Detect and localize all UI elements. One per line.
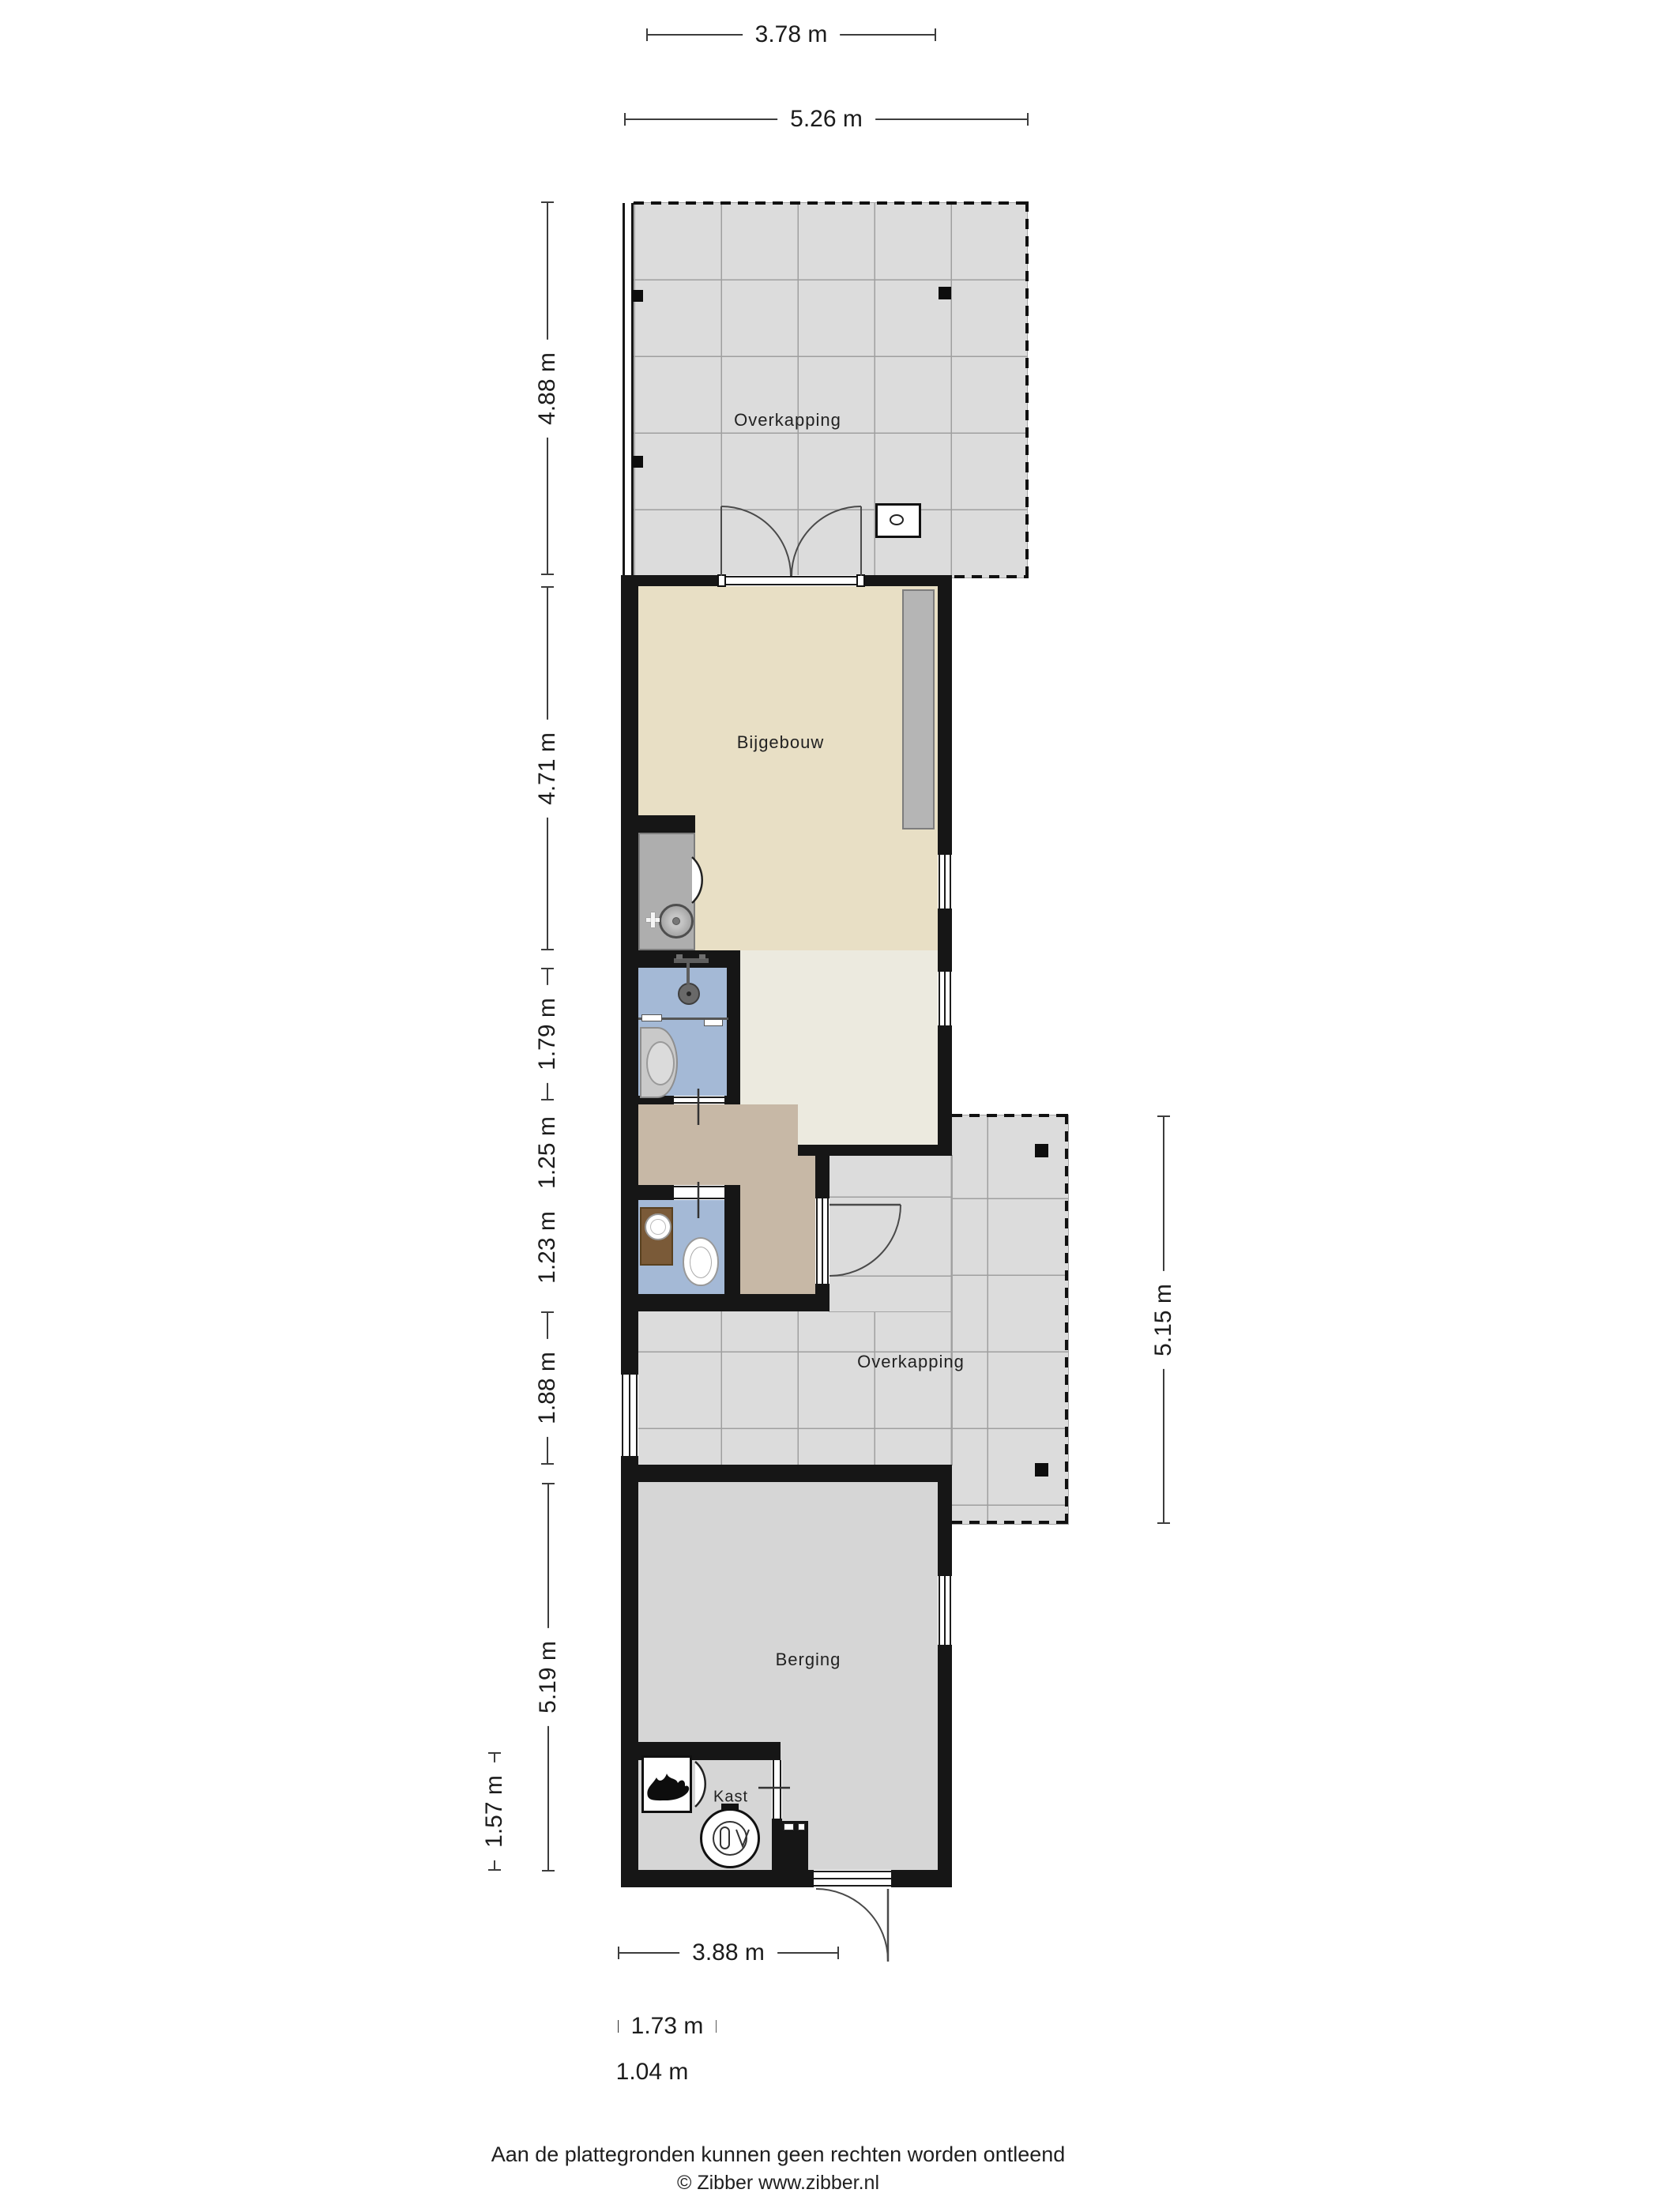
dim-passage-section: 1.88 m [533, 1311, 562, 1465]
wall-berging-top [621, 1465, 952, 1482]
sink-drain [672, 917, 680, 925]
wall [621, 575, 638, 1375]
hall-door-frame [815, 1198, 829, 1284]
faucet-icon [651, 912, 655, 927]
wall [938, 1645, 952, 1887]
dim-overkapping-top-depth: 4.88 m [533, 201, 562, 575]
dim-berging-width: 3.88 m [618, 1939, 839, 1967]
window-right-2 [938, 972, 952, 1025]
toilet-door-sill [674, 1185, 724, 1200]
wall-stub-left [621, 815, 695, 833]
dim-toilet-section: 1.23 m [533, 1200, 562, 1294]
wall [891, 1870, 952, 1887]
overkapping-top-dashed-top [634, 201, 1029, 205]
overkapping-side-floor-inner [829, 1156, 952, 1311]
divider-handle [704, 1019, 723, 1026]
kast-label: Kast [713, 1789, 748, 1807]
hall-floor-sliver [798, 1156, 815, 1294]
overkapping-top-floor [634, 203, 1027, 577]
wall [815, 1284, 829, 1311]
overkapping-side-dashed-bottom [952, 1521, 1068, 1524]
dim-berging-length: 5.19 m [534, 1483, 562, 1872]
wall [938, 1465, 952, 1576]
dim-top-inner-width: 3.78 m [646, 21, 936, 49]
dim-top-outer-width: 5.26 m [624, 105, 1029, 134]
washbasin-bowl [646, 1041, 675, 1085]
meter-box [784, 1823, 794, 1830]
bijgebouw-label: Bijgebouw [737, 732, 825, 753]
shower-head-dot [687, 991, 691, 996]
washer-pill [720, 1826, 730, 1849]
overkapping-side-floor-outer [952, 1115, 1068, 1524]
dim-door-width: 1.04 m [623, 2058, 682, 2086]
wall [621, 1185, 674, 1200]
berging-label: Berging [776, 1650, 841, 1670]
stove-icon [641, 1755, 692, 1813]
post [632, 456, 643, 468]
dim-kast-height: 1.57 m [480, 1752, 509, 1871]
shower-knob [676, 954, 683, 959]
post [1035, 1144, 1048, 1157]
overkapping-side-label: Overkapping [857, 1352, 965, 1372]
door-post [856, 574, 865, 587]
divider-handle [641, 1014, 662, 1021]
wall-shower-right [727, 950, 740, 1104]
dim-hall-section: 1.25 m [533, 1104, 562, 1200]
overkapping-left-thin-wall [623, 203, 634, 575]
washer-drum [713, 1821, 747, 1856]
wall [724, 1185, 740, 1200]
wall [938, 575, 952, 855]
dim-bijgebouw-length: 4.71 m [533, 586, 562, 950]
post [632, 290, 643, 302]
wall [938, 1025, 952, 1156]
floorplan-page: Overkapping Overkapping [0, 0, 1659, 2212]
overkapping-side-floor-passage [638, 1311, 952, 1465]
toilet-basin-inner [650, 1219, 666, 1235]
wall [938, 908, 952, 972]
wall [621, 1870, 814, 1887]
footer-disclaimer: Aan de plattegronden kunnen geen rechten… [304, 2142, 1252, 2167]
door-post [717, 574, 726, 587]
wall [798, 1145, 952, 1156]
meter-box [798, 1823, 805, 1830]
overkapping-side-dashed-right [1065, 1114, 1068, 1524]
double-door-sill [721, 575, 861, 586]
toilet-seat [690, 1247, 712, 1278]
kast-door-frame [772, 1760, 782, 1819]
dim-kast-width: 1.73 m [618, 2012, 717, 2041]
dim-overkapping-side-depth: 5.15 m [1149, 1115, 1178, 1524]
wall-toilet-right [724, 1200, 740, 1294]
overkapping-side-dashed-top [952, 1114, 1068, 1117]
counter-right [902, 589, 935, 829]
wall [621, 1456, 638, 1887]
bath-door-sill [674, 1096, 724, 1104]
window-berging-right [938, 1576, 952, 1645]
exterior-door-sill [814, 1870, 891, 1887]
footer: Aan de plattegronden kunnen geen rechten… [304, 2142, 1252, 2195]
footer-copyright: © Zibber www.zibber.nl [304, 2172, 1252, 2195]
overkapping-top-dashed-bottom [954, 575, 1029, 578]
post [939, 287, 951, 299]
hob-circle-icon [890, 514, 904, 525]
wall [724, 1096, 740, 1104]
wall [621, 1294, 829, 1311]
dim-shower-section: 1.79 m [533, 968, 562, 1100]
shower-knob [699, 954, 705, 959]
overkapping-top-dashed-right [1025, 201, 1029, 578]
window-left-passage [621, 1375, 638, 1456]
post [1035, 1463, 1048, 1477]
overkapping-top-label: Overkapping [734, 410, 841, 431]
window-right-1 [938, 855, 952, 908]
